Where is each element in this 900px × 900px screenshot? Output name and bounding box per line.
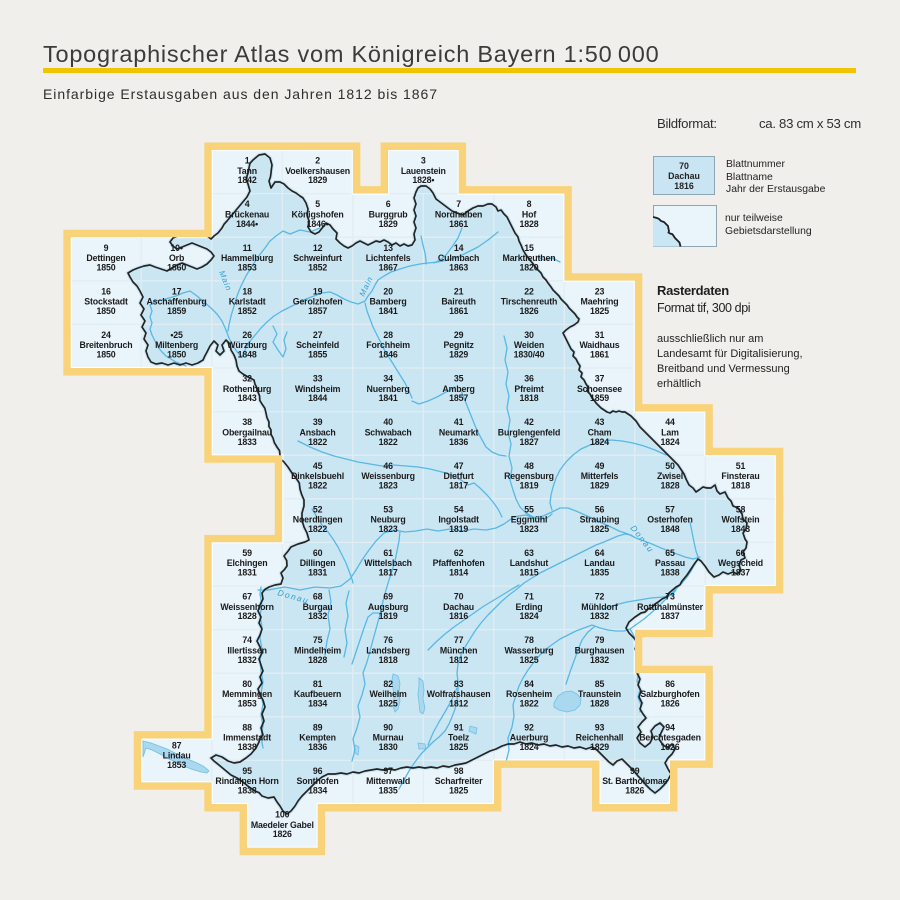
- svg-text:59: 59: [242, 548, 252, 558]
- svg-text:1848: 1848: [661, 524, 680, 534]
- svg-text:48: 48: [524, 461, 534, 471]
- svg-text:37: 37: [595, 374, 605, 384]
- svg-text:97: 97: [383, 766, 393, 776]
- svg-text:84: 84: [524, 679, 534, 689]
- svg-text:1820: 1820: [520, 262, 539, 272]
- svg-text:30: 30: [524, 330, 534, 340]
- svg-text:1850: 1850: [97, 262, 116, 272]
- svg-text:1828: 1828: [308, 655, 327, 665]
- svg-text:45: 45: [313, 461, 323, 471]
- svg-text:1853: 1853: [167, 760, 186, 770]
- svg-text:39: 39: [313, 417, 323, 427]
- svg-text:1826: 1826: [520, 306, 539, 316]
- svg-text:1838: 1838: [238, 742, 257, 752]
- svg-text:17: 17: [172, 286, 182, 296]
- svg-text:64: 64: [595, 548, 605, 558]
- svg-text:1822: 1822: [308, 480, 327, 490]
- svg-text:1822: 1822: [520, 698, 539, 708]
- svg-text:1863: 1863: [449, 262, 468, 272]
- svg-text:1831: 1831: [238, 568, 257, 578]
- svg-text:1822: 1822: [308, 524, 327, 534]
- svg-text:1814: 1814: [449, 568, 468, 578]
- svg-text:9: 9: [104, 243, 109, 253]
- svg-text:27: 27: [313, 330, 323, 340]
- svg-text:99: 99: [630, 766, 640, 776]
- svg-text:90: 90: [383, 722, 393, 732]
- svg-text:49: 49: [595, 461, 605, 471]
- svg-text:1825: 1825: [590, 524, 609, 534]
- svg-text:75: 75: [313, 635, 323, 645]
- svg-text:11: 11: [243, 243, 252, 253]
- svg-text:73: 73: [665, 592, 675, 602]
- svg-text:83: 83: [454, 679, 464, 689]
- svg-text:1825: 1825: [590, 306, 609, 316]
- svg-text:100: 100: [275, 810, 289, 820]
- svg-text:79: 79: [595, 635, 605, 645]
- svg-text:14: 14: [454, 243, 464, 253]
- svg-text:15: 15: [524, 243, 534, 253]
- svg-text:1853: 1853: [238, 698, 257, 708]
- svg-text:44: 44: [665, 417, 675, 427]
- svg-text:1: 1: [245, 156, 250, 166]
- svg-text:92: 92: [524, 722, 534, 732]
- svg-text:52: 52: [313, 504, 323, 514]
- svg-text:1861: 1861: [449, 306, 468, 316]
- svg-text:1825: 1825: [379, 698, 398, 708]
- svg-text:66: 66: [736, 548, 746, 558]
- svg-text:1828: 1828: [590, 698, 609, 708]
- svg-text:1832: 1832: [590, 655, 609, 665]
- svg-text:56: 56: [595, 504, 605, 514]
- svg-text:61: 61: [383, 548, 393, 558]
- svg-text:5: 5: [315, 199, 320, 209]
- svg-text:1824: 1824: [661, 437, 680, 447]
- svg-text:1812: 1812: [449, 698, 468, 708]
- svg-text:1825: 1825: [520, 655, 539, 665]
- svg-text:98: 98: [454, 766, 464, 776]
- svg-text:65: 65: [665, 548, 675, 558]
- svg-text:1816: 1816: [449, 611, 468, 621]
- svg-text:1838: 1838: [661, 568, 680, 578]
- svg-text:95: 95: [242, 766, 252, 776]
- svg-text:1846•: 1846•: [307, 219, 329, 229]
- svg-text:24: 24: [101, 330, 111, 340]
- svg-text:74: 74: [242, 635, 252, 645]
- svg-text:1838: 1838: [238, 786, 257, 796]
- svg-text:1824: 1824: [520, 742, 539, 752]
- svg-text:77: 77: [454, 635, 464, 645]
- svg-text:1818: 1818: [731, 480, 750, 490]
- svg-text:47: 47: [454, 461, 464, 471]
- svg-text:26: 26: [242, 330, 252, 340]
- svg-text:94: 94: [665, 722, 675, 732]
- svg-text:13: 13: [383, 243, 393, 253]
- svg-text:1815: 1815: [520, 568, 539, 578]
- svg-text:1826: 1826: [625, 786, 644, 796]
- svg-text:1829: 1829: [308, 175, 327, 185]
- svg-text:29: 29: [454, 330, 464, 340]
- svg-text:1823: 1823: [379, 524, 398, 534]
- svg-text:1843: 1843: [731, 524, 750, 534]
- svg-text:72: 72: [595, 592, 605, 602]
- svg-text:1832: 1832: [590, 611, 609, 621]
- svg-text:1860: 1860: [167, 262, 186, 272]
- svg-text:1850: 1850: [97, 306, 116, 316]
- svg-text:34: 34: [383, 374, 393, 384]
- svg-text:1857: 1857: [308, 306, 327, 316]
- svg-text:1829: 1829: [379, 219, 398, 229]
- svg-text:2: 2: [315, 156, 320, 166]
- svg-text:6: 6: [386, 199, 391, 209]
- svg-text:1825: 1825: [449, 786, 468, 796]
- svg-text:40: 40: [383, 417, 393, 427]
- svg-text:1824: 1824: [590, 437, 609, 447]
- svg-text:54: 54: [454, 504, 464, 514]
- svg-text:23: 23: [595, 286, 605, 296]
- svg-text:8: 8: [527, 199, 532, 209]
- svg-text:1819: 1819: [379, 611, 398, 621]
- svg-text:35: 35: [454, 374, 464, 384]
- svg-text:1836: 1836: [308, 742, 327, 752]
- svg-text:1853: 1853: [238, 262, 257, 272]
- svg-text:1857: 1857: [449, 393, 468, 403]
- svg-text:1861: 1861: [449, 219, 468, 229]
- svg-text:22: 22: [524, 286, 534, 296]
- svg-text:42: 42: [524, 417, 534, 427]
- svg-text:1835: 1835: [590, 568, 609, 578]
- svg-text:1823: 1823: [520, 524, 539, 534]
- svg-text:88: 88: [242, 722, 252, 732]
- svg-text:36: 36: [524, 374, 534, 384]
- svg-text:1832: 1832: [238, 655, 257, 665]
- svg-text:16: 16: [101, 286, 111, 296]
- svg-text:1818: 1818: [379, 655, 398, 665]
- svg-text:1848: 1848: [238, 350, 257, 360]
- svg-text:41: 41: [454, 417, 464, 427]
- svg-text:1812: 1812: [449, 655, 468, 665]
- svg-text:1834: 1834: [308, 786, 327, 796]
- svg-text:1832: 1832: [308, 611, 327, 621]
- svg-text:1828: 1828: [661, 480, 680, 490]
- svg-text:93: 93: [595, 722, 605, 732]
- svg-text:1826: 1826: [661, 698, 680, 708]
- svg-text:1852: 1852: [238, 306, 257, 316]
- svg-text:19: 19: [313, 286, 323, 296]
- svg-text:1844•: 1844•: [236, 219, 258, 229]
- svg-text:1819: 1819: [449, 524, 468, 534]
- svg-text:7: 7: [456, 199, 461, 209]
- svg-text:32: 32: [242, 374, 252, 384]
- svg-text:1841: 1841: [379, 393, 398, 403]
- svg-text:71: 71: [524, 592, 534, 602]
- svg-text:50: 50: [665, 461, 675, 471]
- svg-text:1852: 1852: [308, 262, 327, 272]
- svg-text:21: 21: [454, 286, 464, 296]
- svg-text:1850: 1850: [97, 350, 116, 360]
- svg-text:1826: 1826: [661, 742, 680, 752]
- svg-text:1828: 1828: [520, 219, 539, 229]
- svg-text:1817: 1817: [379, 568, 398, 578]
- svg-text:1829: 1829: [449, 350, 468, 360]
- svg-text:1861: 1861: [590, 350, 609, 360]
- svg-text:1825: 1825: [449, 742, 468, 752]
- svg-text:51: 51: [736, 461, 746, 471]
- svg-text:1830: 1830: [379, 742, 398, 752]
- svg-text:57: 57: [665, 504, 675, 514]
- svg-text:3: 3: [421, 156, 426, 166]
- svg-text:1822: 1822: [379, 437, 398, 447]
- svg-text:81: 81: [313, 679, 323, 689]
- svg-text:1859: 1859: [167, 306, 186, 316]
- svg-text:85: 85: [595, 679, 605, 689]
- svg-text:96: 96: [313, 766, 323, 776]
- svg-text:1824: 1824: [520, 611, 539, 621]
- svg-text:1818: 1818: [520, 393, 539, 403]
- svg-text:38: 38: [242, 417, 252, 427]
- svg-text:82: 82: [383, 679, 393, 689]
- svg-text:1837: 1837: [661, 611, 680, 621]
- svg-text:1855: 1855: [308, 350, 327, 360]
- svg-text:1841: 1841: [379, 306, 398, 316]
- svg-text:1850: 1850: [167, 350, 186, 360]
- svg-text:70: 70: [454, 592, 464, 602]
- svg-text:1842: 1842: [238, 175, 257, 185]
- svg-text:1830/40: 1830/40: [514, 350, 545, 360]
- svg-text:53: 53: [383, 504, 393, 514]
- svg-text:1867: 1867: [379, 262, 398, 272]
- svg-text:1846: 1846: [379, 350, 398, 360]
- svg-text:1826: 1826: [273, 829, 292, 839]
- svg-text:1822: 1822: [308, 437, 327, 447]
- svg-text:20: 20: [383, 286, 393, 296]
- svg-text:1859: 1859: [590, 393, 609, 403]
- svg-text:58: 58: [736, 504, 746, 514]
- svg-text:62: 62: [454, 548, 464, 558]
- svg-text:1817: 1817: [449, 480, 468, 490]
- svg-text:12: 12: [313, 243, 323, 253]
- svg-text:80: 80: [242, 679, 252, 689]
- svg-text:60: 60: [313, 548, 323, 558]
- svg-text:1827: 1827: [520, 437, 539, 447]
- svg-text:18: 18: [242, 286, 252, 296]
- svg-text:1834: 1834: [308, 698, 327, 708]
- svg-text:1833: 1833: [238, 437, 257, 447]
- svg-text:63: 63: [524, 548, 534, 558]
- svg-text:•25: •25: [170, 330, 183, 340]
- svg-text:1828•: 1828•: [412, 175, 434, 185]
- svg-text:76: 76: [383, 635, 393, 645]
- svg-text:1836: 1836: [449, 437, 468, 447]
- svg-text:10•: 10•: [170, 243, 182, 253]
- svg-text:1843: 1843: [238, 393, 257, 403]
- svg-text:1829: 1829: [590, 480, 609, 490]
- svg-text:91: 91: [454, 722, 464, 732]
- svg-text:78: 78: [524, 635, 534, 645]
- svg-text:1831: 1831: [308, 568, 327, 578]
- svg-text:28: 28: [383, 330, 393, 340]
- svg-text:33: 33: [313, 374, 323, 384]
- svg-text:67: 67: [242, 592, 252, 602]
- svg-text:69: 69: [383, 592, 393, 602]
- svg-text:1829: 1829: [590, 742, 609, 752]
- svg-text:1828: 1828: [238, 611, 257, 621]
- svg-text:68: 68: [313, 592, 323, 602]
- svg-text:4: 4: [245, 199, 250, 209]
- svg-text:89: 89: [313, 722, 323, 732]
- svg-text:1819: 1819: [520, 480, 539, 490]
- svg-text:46: 46: [383, 461, 393, 471]
- svg-text:86: 86: [665, 679, 675, 689]
- svg-text:31: 31: [595, 330, 605, 340]
- svg-text:1837: 1837: [731, 568, 750, 578]
- svg-text:1844: 1844: [308, 393, 327, 403]
- svg-text:1835: 1835: [379, 786, 398, 796]
- svg-text:55: 55: [524, 504, 534, 514]
- svg-text:87: 87: [172, 740, 182, 750]
- svg-text:43: 43: [595, 417, 605, 427]
- svg-text:1823: 1823: [379, 480, 398, 490]
